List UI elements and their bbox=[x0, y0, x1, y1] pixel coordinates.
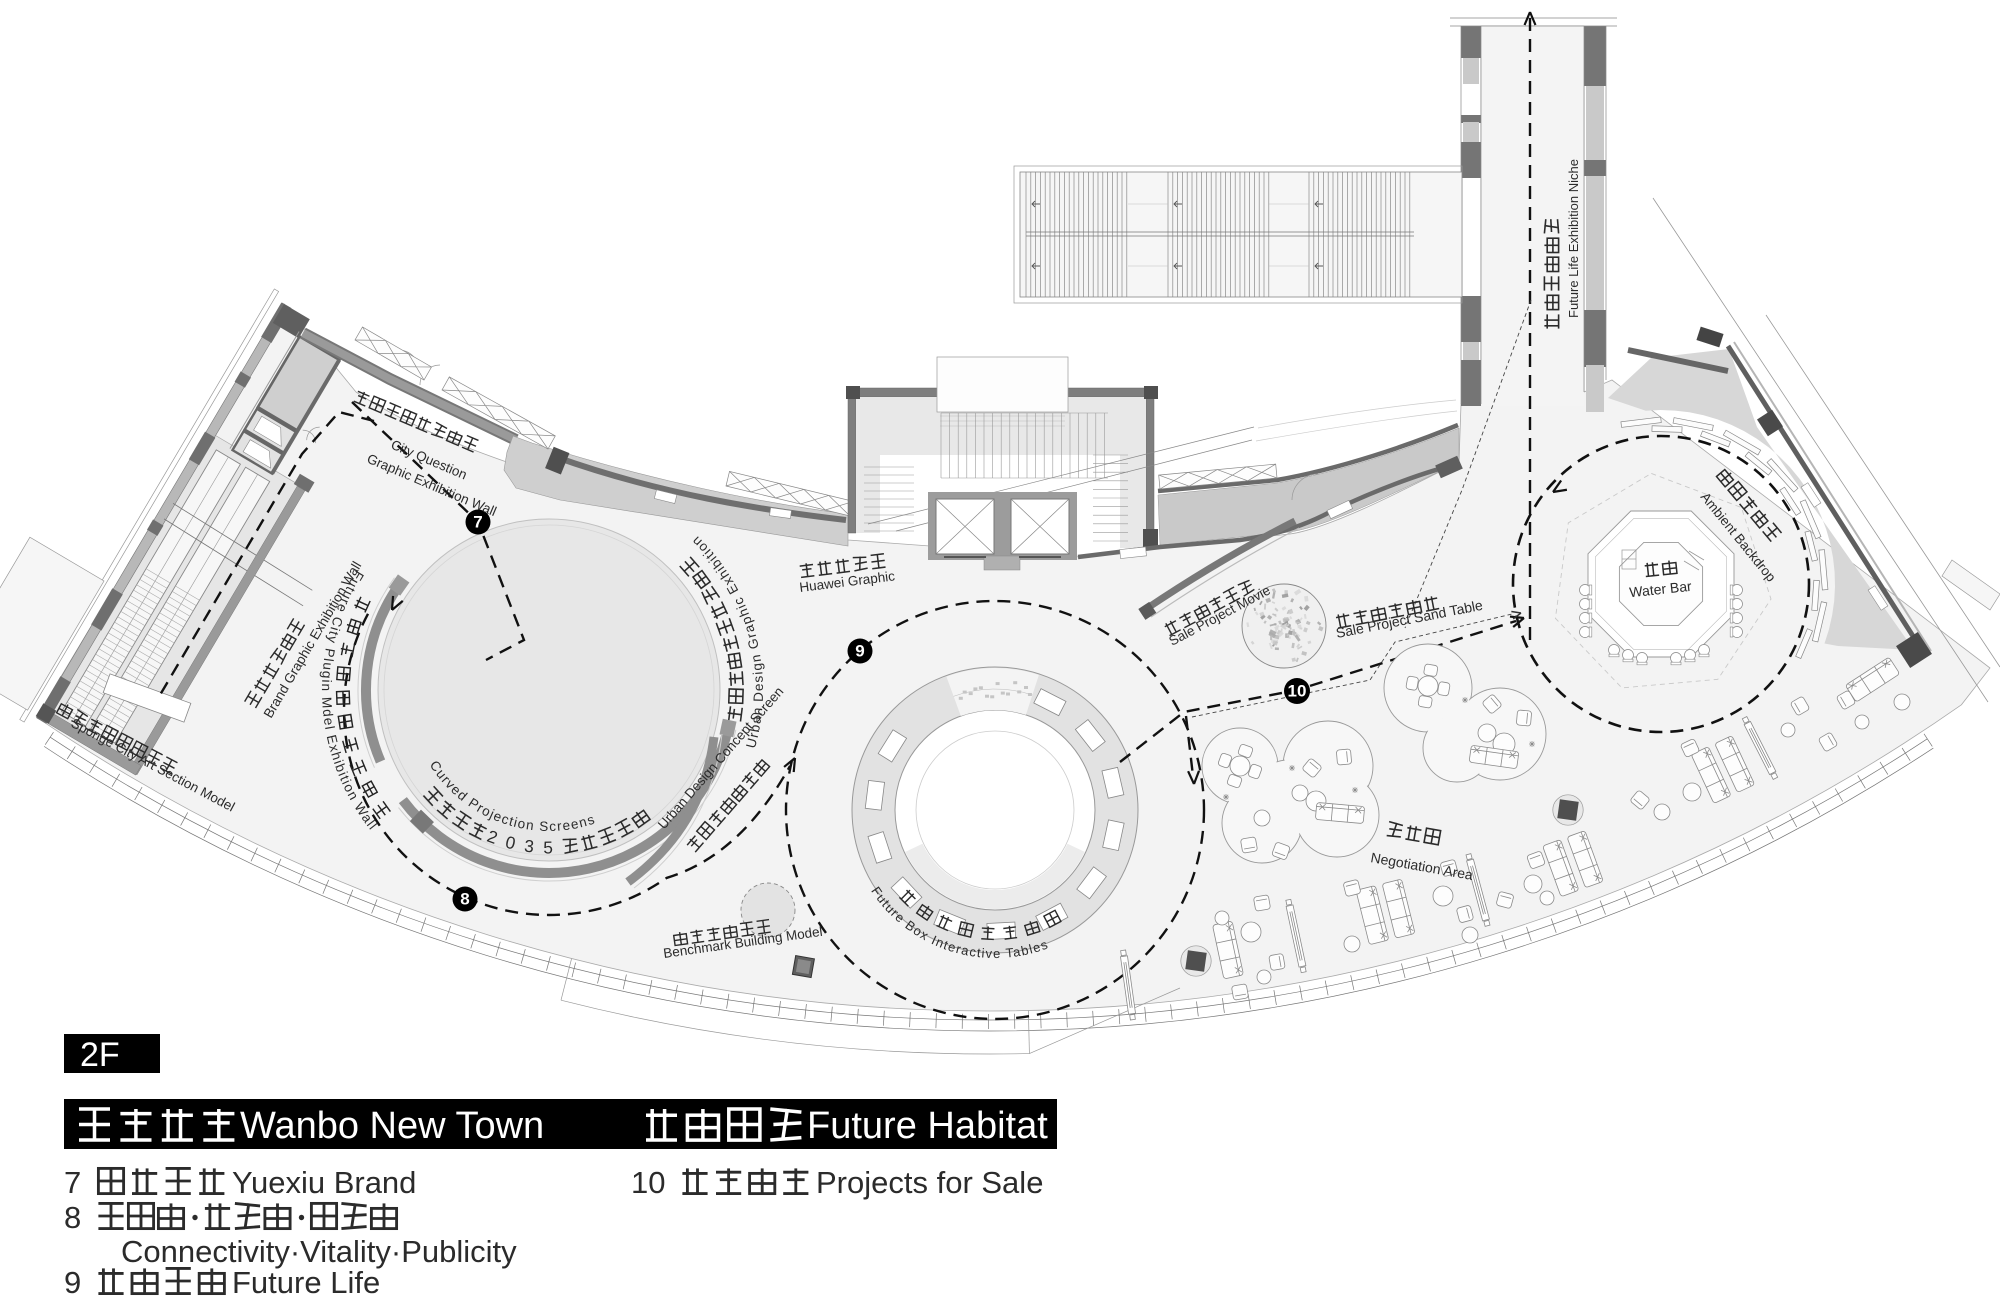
svg-text:9: 9 bbox=[64, 1265, 81, 1297]
svg-text:Projects for Sale: Projects for Sale bbox=[816, 1165, 1043, 1200]
svg-text:10: 10 bbox=[631, 1165, 665, 1200]
svg-text:10: 10 bbox=[1288, 682, 1307, 701]
svg-text:8: 8 bbox=[64, 1200, 81, 1235]
svg-text:2F: 2F bbox=[80, 1036, 120, 1074]
svg-text:Future Habitat: Future Habitat bbox=[807, 1105, 1048, 1147]
svg-text:5: 5 bbox=[543, 837, 553, 857]
svg-text:9: 9 bbox=[855, 642, 864, 661]
svg-text:Future Life: Future Life bbox=[232, 1265, 380, 1297]
svg-text:3: 3 bbox=[523, 836, 535, 857]
svg-text:Wanbo New Town: Wanbo New Town bbox=[240, 1105, 544, 1147]
svg-text:7: 7 bbox=[473, 513, 482, 532]
svg-text:7: 7 bbox=[64, 1165, 81, 1200]
svg-text:Yuexiu Brand: Yuexiu Brand bbox=[232, 1165, 416, 1200]
svg-text:Connectivity·Vitality·Publicit: Connectivity·Vitality·Publicity bbox=[121, 1234, 517, 1269]
svg-text:Future Life Exhibition Niche: Future Life Exhibition Niche bbox=[1566, 159, 1581, 318]
svg-text:8: 8 bbox=[460, 890, 469, 909]
